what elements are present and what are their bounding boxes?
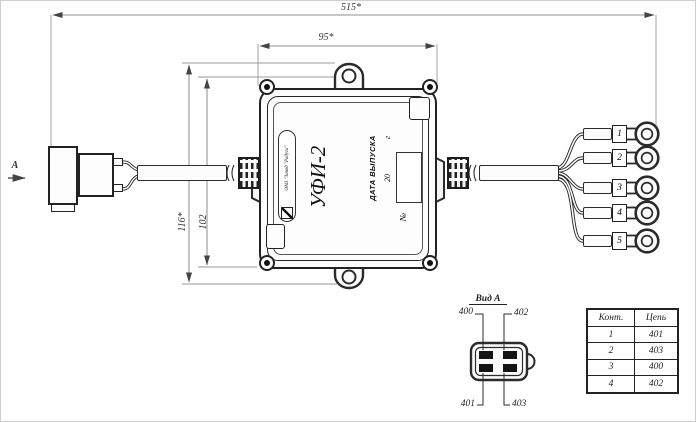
table-cell: 2 [588,343,635,359]
screw-head-icon [264,84,270,90]
date-entry-field [396,152,422,203]
lid-recess-bottom-left [266,224,285,249]
left-connector-pin-lower [113,184,123,192]
table-cell: 401 [635,327,677,343]
corner-screw-bottom-left [259,255,275,271]
left-cable-gland [238,157,260,189]
table-cell: 403 [635,343,677,359]
ring-terminals [626,123,658,253]
raduga-logo-icon [281,207,293,219]
table-header-contact: Конт. [588,310,635,327]
detail-connector-face [471,314,535,405]
terminal-tag-3: 3 [612,179,627,197]
table-header-circuit: Цепь [635,310,677,327]
left-connector-base-band [51,204,75,212]
detail-view-title: Вид А [469,294,507,305]
overall-length-dimension-label: 515* [326,2,376,13]
corner-screw-bottom-right [422,255,438,271]
terminal-tag-2: 2 [612,149,627,167]
left-connector-wires [123,162,138,189]
table-cell: 402 [635,376,677,392]
terminal-sleeve-3 [583,182,612,194]
technical-drawing: 515* 95* 116* 102 А ОАО "Завод "Радуга" … [0,0,696,422]
table-cell: 1 [588,327,635,343]
left-connector-front [78,153,114,197]
detail-pin-label-401: 401 [441,399,475,409]
terminal-sleeve-5 [583,235,612,247]
right-cable-sleeve [479,165,559,181]
box-width-dimension-label: 95* [306,32,346,43]
pin-assignment-table: Конт. Цепь 1 401 2 403 3 400 4 402 [586,308,679,394]
screw-head-icon [264,260,270,266]
left-connector-body [48,146,78,205]
screw-head-icon [427,84,433,90]
release-date-year-prefix: 20 [383,174,392,182]
serial-number-label: № [398,209,408,225]
table-cell: 400 [635,360,677,376]
view-arrow-label: А [7,160,23,171]
detail-pin-label-402: 402 [514,308,548,318]
terminal-sleeve-4 [583,207,612,219]
device-model-label: УФИ-2 [305,125,331,229]
overall-height-dimension-label: 116* [176,205,188,239]
terminal-sleeve-2 [583,152,612,164]
corner-screw-top-right [422,79,438,95]
manufacturer-text: ОАО "Завод "Радуга" [283,126,291,210]
table-cell: 4 [588,376,635,392]
lid-recess-top-right [409,97,430,120]
screw-head-icon [427,260,433,266]
detail-pin-label-403: 403 [512,399,546,409]
right-cable-gland [447,157,469,189]
corner-screw-top-left [259,79,275,95]
table-cell: 3 [588,360,635,376]
terminal-tag-1: 1 [612,125,627,143]
terminal-wires [557,134,583,241]
release-date-year-suffix: г [383,136,392,139]
left-cable-sleeve [137,165,227,181]
release-date-year: 20 г [382,136,392,182]
release-date-label: ДАТА ВЫПУСКА [367,132,377,204]
terminal-tag-4: 4 [612,204,627,222]
left-connector-pin-upper [113,158,123,166]
terminal-tag-5: 5 [612,232,627,250]
detail-pin-label-400: 400 [439,307,473,317]
terminal-sleeve-1 [583,128,612,140]
box-height-dimension-label: 102 [197,205,209,239]
